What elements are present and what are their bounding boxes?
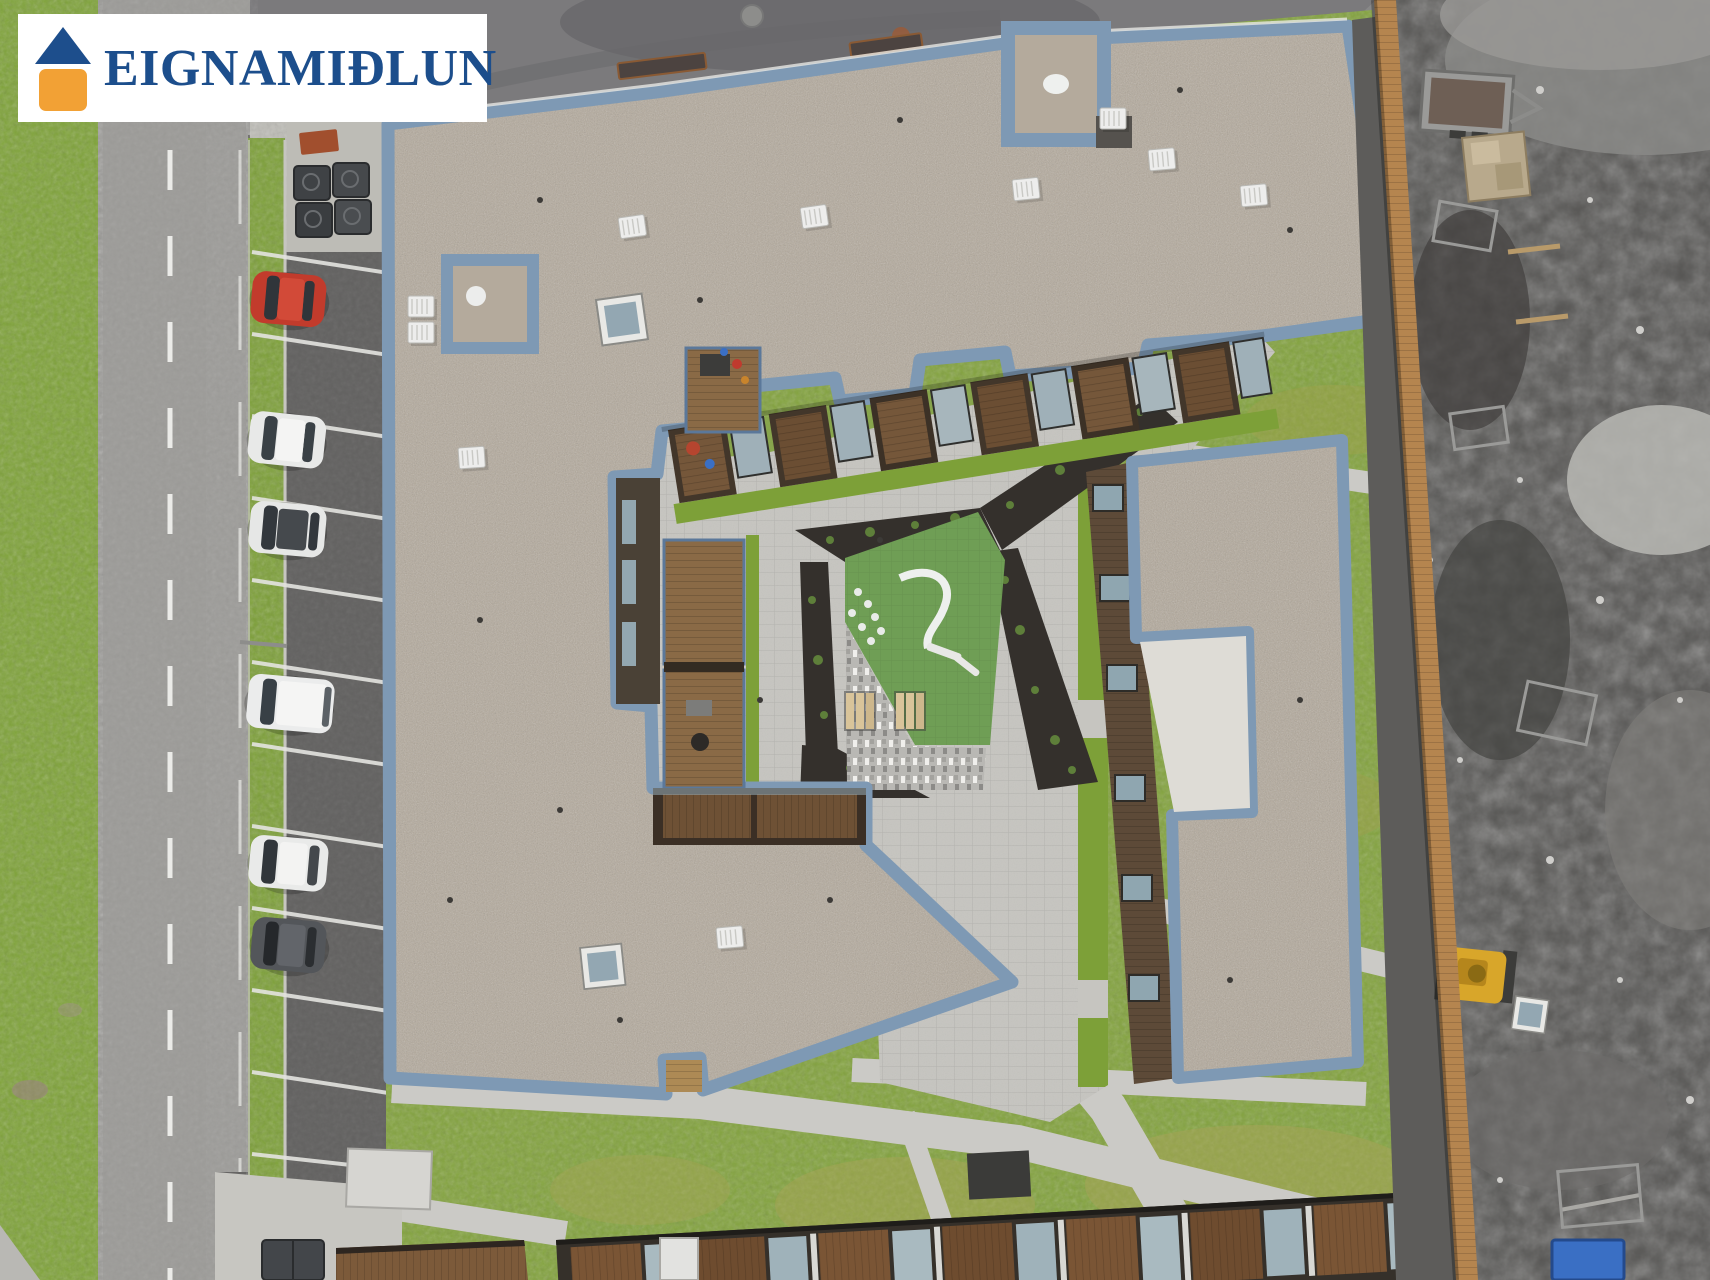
logo-roof-shape [35,27,91,64]
brand-watermark: EIGNAMIÐLUN [18,14,487,122]
screenshot: EIGNAMIÐLUN [0,0,1710,1280]
skylight [580,944,626,990]
aerial-photo [0,0,1710,1280]
picnic-bench [844,691,876,731]
right-building [1086,430,1370,1090]
waste-bins-south [262,1240,324,1280]
roof-vent [1012,177,1043,204]
brand-name: EIGNAMIÐLUN [104,39,497,98]
corner-terrace [686,348,760,432]
logo-wall-shape [39,69,87,111]
road [98,0,250,1280]
bottom-notch-deck [666,1060,702,1092]
pallet-stack [1462,132,1530,202]
entry-door-canopy [660,1238,698,1280]
roof-vent [458,446,489,472]
skylight [596,294,648,346]
rusty-plate [299,129,339,155]
wood-terrace [664,670,744,788]
balcony-block [653,788,866,845]
roof-vent [618,214,650,242]
concrete-pad [346,1149,432,1210]
wood-terrace [664,540,744,664]
roof-vent [1148,147,1179,173]
manhole-cover [741,5,763,27]
roof-vent [1240,183,1271,209]
roof-vent [800,204,832,232]
house-logo-icon [35,27,91,109]
picnic-bench [894,691,926,731]
grill [691,733,709,751]
portable-toilet [1552,1240,1624,1280]
grass-left-strip [0,0,98,1280]
debris-panel [1511,996,1548,1033]
roof-vent [716,925,747,951]
